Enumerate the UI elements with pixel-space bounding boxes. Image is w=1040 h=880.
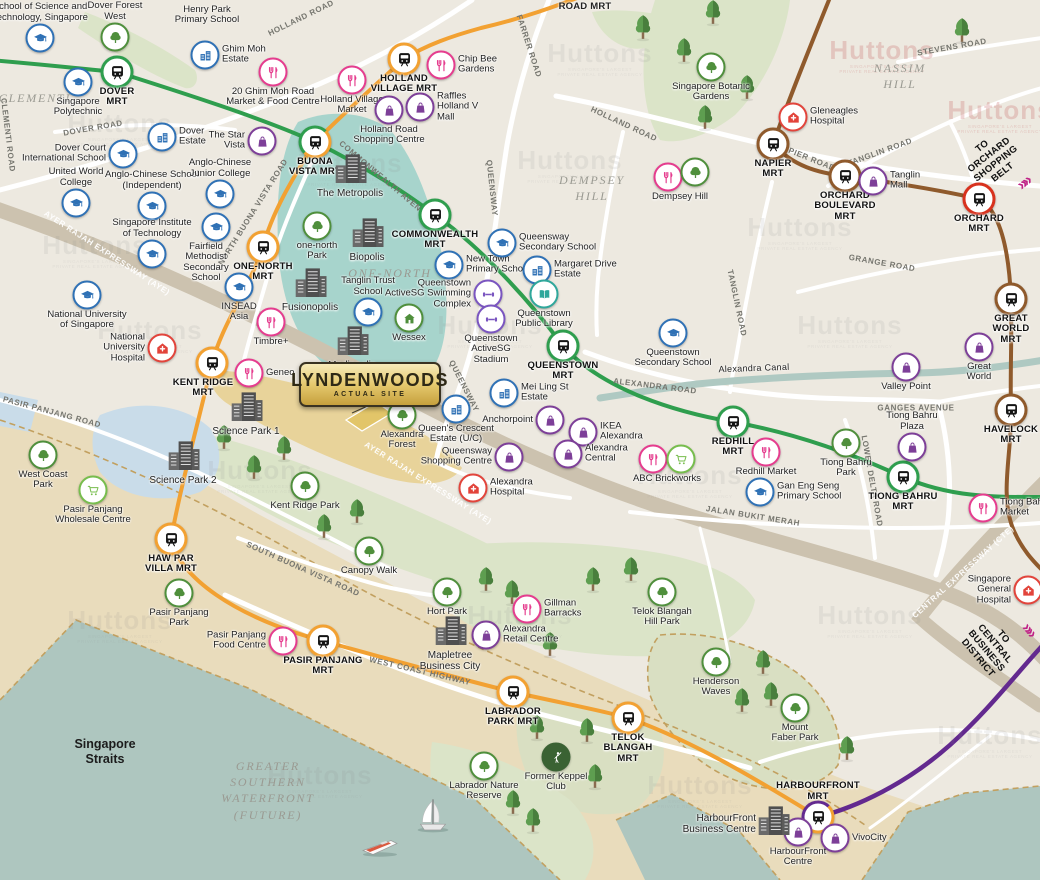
poi-label: Henderson Waves bbox=[693, 677, 739, 698]
tree-illustration bbox=[672, 36, 697, 65]
train-icon bbox=[887, 461, 920, 494]
road-label: JALAN BUKIT MERAH bbox=[705, 504, 800, 528]
train-icon bbox=[497, 676, 530, 709]
cap-icon bbox=[62, 189, 91, 218]
poi-label: Tiong Bahru Park bbox=[820, 458, 871, 479]
tree-icon bbox=[781, 694, 810, 723]
tree-illustration bbox=[312, 512, 337, 541]
train-icon bbox=[307, 625, 340, 658]
poi-label: Queensway Secondary School bbox=[519, 233, 596, 254]
food-icon bbox=[269, 627, 298, 656]
poi-label: United World College bbox=[49, 167, 104, 188]
poi-label: West Coast Park bbox=[19, 470, 68, 491]
poi-label: TELOK BLANGAH MRT bbox=[604, 733, 653, 764]
building-icon bbox=[291, 266, 329, 299]
poi-label: HARBOURFRONT MRT bbox=[776, 781, 860, 802]
poi-label: COMMONWEALTH MRT bbox=[392, 230, 479, 251]
cap-icon bbox=[73, 281, 102, 310]
dumb-icon bbox=[477, 305, 506, 334]
food-icon bbox=[235, 359, 264, 388]
tree-icon bbox=[355, 537, 384, 566]
train-icon bbox=[995, 283, 1028, 316]
tree-illustration bbox=[521, 806, 546, 835]
train-icon bbox=[196, 347, 229, 380]
poi-label: Fairfield Methodist Secondary School bbox=[183, 242, 228, 284]
hosp-icon bbox=[779, 103, 808, 132]
poi-label: Alexandra Hospital bbox=[490, 478, 533, 499]
food-icon bbox=[969, 494, 998, 523]
poi-label: Queenstown ActiveSG Stadium bbox=[464, 334, 517, 365]
cap-icon bbox=[435, 251, 464, 280]
cap-icon bbox=[202, 213, 231, 242]
tree-illustration bbox=[631, 13, 656, 42]
book-icon bbox=[530, 280, 559, 309]
poi-label: ORCHARD MRT bbox=[954, 214, 1004, 235]
road-label: FARRER ROAD bbox=[515, 14, 544, 79]
cap-icon bbox=[109, 140, 138, 169]
poi-label: TIONG BAHRU MRT bbox=[868, 492, 937, 513]
tree-icon bbox=[165, 579, 194, 608]
poi-label: PASIR PANJANG MRT bbox=[283, 656, 362, 677]
tree-icon bbox=[681, 158, 710, 187]
poi-layer: HuttonsSINGAPORE'S LARGESTPRIVATE REAL E… bbox=[0, 0, 1040, 880]
poi-label: Singapore Botanic Gardens bbox=[672, 82, 750, 103]
poi-label: KENT RIDGE MRT bbox=[173, 378, 234, 399]
poi-label: Tiong Bahru Market bbox=[1000, 498, 1040, 519]
tree-icon bbox=[303, 212, 332, 241]
cap-icon bbox=[354, 298, 383, 327]
poi-label: Ghim Moh Estate bbox=[222, 45, 266, 66]
building-icon bbox=[348, 216, 386, 249]
poi-label: Tanglin Mall bbox=[890, 171, 920, 192]
tree-icon bbox=[470, 752, 499, 781]
poi-label: DOVER MRT bbox=[100, 87, 135, 108]
poi-label: Timbre+ bbox=[254, 337, 289, 347]
bag-icon bbox=[821, 824, 850, 853]
road-label: CLEMENTI ROAD bbox=[0, 97, 17, 172]
poi-label: Pasir Panjang Food Centre bbox=[207, 631, 266, 652]
bag-icon bbox=[965, 333, 994, 362]
poi-label: Labrador Nature Reserve bbox=[449, 781, 518, 802]
estate-icon bbox=[191, 41, 220, 70]
poi-label: QUEENSTOWN MRT bbox=[528, 361, 599, 382]
hosp-icon bbox=[459, 474, 488, 503]
watermark: HuttonsSINGAPORE'S LARGESTPRIVATE REAL E… bbox=[947, 96, 1040, 134]
building-icon bbox=[754, 804, 792, 837]
road-label: GRANGE ROAD bbox=[848, 253, 916, 274]
tree-illustration bbox=[693, 103, 718, 132]
bag-icon bbox=[472, 621, 501, 650]
hosp-icon bbox=[148, 334, 177, 363]
tree-illustration bbox=[474, 565, 499, 594]
train-icon bbox=[612, 702, 645, 735]
map-label: Alexandra Canal bbox=[718, 363, 789, 375]
tree-illustration bbox=[272, 434, 297, 463]
home-icon bbox=[395, 304, 424, 333]
poi-label: National University of Singapore bbox=[47, 310, 126, 331]
tree-illustration bbox=[701, 0, 726, 27]
tree-icon bbox=[832, 429, 861, 458]
cap-icon bbox=[26, 24, 55, 53]
site-badge: LYNDENWOODS ACTUAL SITE bbox=[299, 362, 441, 407]
tree-icon bbox=[648, 578, 677, 607]
poi-label: Mount Faber Park bbox=[772, 723, 819, 744]
poi-label: Great World bbox=[967, 362, 992, 383]
bag-icon bbox=[859, 167, 888, 196]
food-icon bbox=[259, 58, 288, 87]
poi-label: Alexandra Central bbox=[585, 444, 628, 465]
watermark: HuttonsSINGAPORE'S LARGESTPRIVATE REAL E… bbox=[937, 721, 1040, 759]
poi-label: Valley Point bbox=[881, 382, 930, 392]
cap-icon bbox=[225, 273, 254, 302]
bag-icon bbox=[554, 440, 583, 469]
tree-icon bbox=[29, 441, 58, 470]
poi-label: ORCHARD BOULEVARD MRT bbox=[814, 191, 875, 222]
direction-arrow-icon: »» bbox=[1017, 620, 1038, 641]
estate-icon bbox=[148, 123, 177, 152]
building-icon bbox=[227, 390, 265, 423]
poi-label: Anglo-Chinese Junior College bbox=[189, 158, 251, 179]
building-icon bbox=[431, 614, 469, 647]
hosp-icon bbox=[1014, 576, 1040, 605]
direction-arrow-icon: »» bbox=[1014, 173, 1034, 194]
tree-illustration bbox=[835, 734, 860, 763]
road-label: TANGLIN ROAD bbox=[847, 136, 914, 168]
cap-icon bbox=[138, 240, 167, 269]
watermark: HuttonsSINGAPORE'S LARGESTPRIVATE REAL E… bbox=[797, 311, 902, 349]
poi-label: Holland Road Shopping Centre bbox=[353, 125, 424, 146]
poi-label: Singapore Polytechnic bbox=[54, 97, 103, 118]
poi-label: Pasir Panjang Park bbox=[149, 608, 208, 629]
train-icon bbox=[419, 199, 452, 232]
estate-icon bbox=[442, 395, 471, 424]
tree-icon bbox=[101, 23, 130, 52]
poi-label: New Town Primary School bbox=[466, 255, 530, 276]
train-icon bbox=[155, 523, 188, 556]
poi-label: Alexandra Forest bbox=[381, 430, 424, 451]
cap-icon bbox=[659, 319, 688, 348]
train-icon bbox=[963, 183, 996, 216]
poi-label: Gan Eng Seng Primary School bbox=[777, 482, 841, 503]
train-icon bbox=[247, 231, 280, 264]
train-icon bbox=[829, 160, 862, 193]
map-label: Singapore Straits bbox=[74, 737, 135, 767]
food-icon bbox=[338, 66, 367, 95]
poi-label: REDHILL MRT bbox=[712, 437, 755, 458]
poi-label: ABC Brickworks bbox=[633, 474, 701, 484]
road-label: HOLLAND ROAD bbox=[267, 0, 336, 38]
road-label: HOLLAND ROAD bbox=[589, 105, 658, 144]
bag-icon bbox=[406, 93, 435, 122]
tree-icon bbox=[702, 648, 731, 677]
cap-icon bbox=[488, 229, 517, 258]
poi-label: one-north Park bbox=[297, 241, 338, 262]
poi-label: Dover Estate bbox=[179, 127, 206, 148]
poi-label: Queen's Crescent Estate (U/C) bbox=[418, 424, 494, 445]
poi-label: Anchorpoint bbox=[482, 415, 533, 425]
tree-illustration bbox=[345, 497, 370, 526]
cart-icon bbox=[79, 476, 108, 505]
map-label: ROAD MRT bbox=[559, 2, 612, 12]
train-icon bbox=[717, 406, 750, 439]
food-icon bbox=[513, 595, 542, 624]
poi-label: Dover Forest West bbox=[88, 1, 143, 22]
location-map: HuttonsSINGAPORE'S LARGESTPRIVATE REAL E… bbox=[0, 0, 1040, 880]
road-label: PASIR PANJANG ROAD bbox=[2, 395, 102, 430]
site-badge-subtitle: ACTUAL SITE bbox=[334, 391, 407, 398]
poi-label: Queenstown ActiveSG Swimming Complex bbox=[385, 278, 471, 309]
area-label: GREATER SOUTHERN WATERFRONT (FUTURE) bbox=[221, 758, 314, 823]
poi-label: NAPIER MRT bbox=[754, 159, 791, 180]
poi-label: Margaret Drive Estate bbox=[554, 260, 617, 281]
bag-icon bbox=[375, 96, 404, 125]
building-icon bbox=[331, 152, 369, 185]
train-icon bbox=[995, 394, 1028, 427]
poi-label: Gleneagles Hospital bbox=[810, 107, 858, 128]
estate-icon bbox=[490, 379, 519, 408]
poi-label: Queensway Shopping Centre bbox=[421, 447, 492, 468]
poi-label: HarbourFront Centre bbox=[770, 847, 827, 868]
poi-label: HarbourFront Business Centre bbox=[683, 813, 756, 835]
cap-icon bbox=[746, 478, 775, 507]
bag-icon bbox=[898, 433, 927, 462]
poi-label: Mapletree Business City bbox=[420, 650, 481, 672]
poi-label: Queenstown Secondary School bbox=[634, 348, 711, 369]
train-icon bbox=[757, 128, 790, 161]
poi-label: Fusionopolis bbox=[282, 302, 338, 313]
poi-label: Singapore Institute of Technology bbox=[112, 218, 191, 239]
train-icon bbox=[101, 56, 134, 89]
poi-label: Former Keppel Club bbox=[525, 772, 588, 793]
food-icon bbox=[654, 163, 683, 192]
poi-label: The Metropolis bbox=[317, 188, 383, 199]
watermark: HuttonsSINGAPORE'S LARGESTPRIVATE REAL E… bbox=[647, 771, 752, 809]
tree-illustration bbox=[751, 648, 776, 677]
poi-label: Tiong Bahru Plaza bbox=[886, 411, 937, 432]
tree-icon bbox=[433, 578, 462, 607]
tree-illustration bbox=[619, 555, 644, 584]
poi-label: Kent Ridge Park bbox=[270, 501, 339, 511]
road-label: TANGLIN ROAD bbox=[726, 269, 749, 337]
bag-icon bbox=[248, 127, 277, 156]
poi-label: Alexandra Retail Centre bbox=[503, 625, 558, 646]
watermark: HuttonsSINGAPORE'S LARGESTPRIVATE REAL E… bbox=[547, 39, 652, 77]
road-label: LOWER DELTA ROAD bbox=[860, 435, 885, 528]
train-icon bbox=[547, 330, 580, 363]
poi-label: Science Park 1 bbox=[212, 426, 279, 437]
tree-icon bbox=[291, 472, 320, 501]
bag-icon bbox=[536, 406, 565, 435]
road-label: QUEENSWAY bbox=[485, 159, 500, 216]
poi-label: Wessex bbox=[392, 333, 426, 343]
poi-label: School of Science and Technology, Singap… bbox=[0, 2, 88, 23]
poi-label: Anglo-Chinese School (Independent) bbox=[105, 170, 199, 191]
poi-label: Telok Blangah Hill Park bbox=[632, 607, 692, 628]
tree-illustration bbox=[575, 716, 600, 745]
poi-label: The Star Vista bbox=[209, 131, 245, 152]
cart-icon bbox=[667, 445, 696, 474]
poi-label: Canopy Walk bbox=[341, 566, 397, 576]
food-icon bbox=[639, 445, 668, 474]
poi-label: Gillman Barracks bbox=[544, 599, 581, 620]
golf-icon bbox=[542, 743, 571, 772]
poi-label: Mei Ling St Estate bbox=[521, 383, 569, 404]
poi-label: GREAT WORLD MRT bbox=[993, 314, 1030, 345]
tree-illustration bbox=[242, 453, 267, 482]
poi-label: LABRADOR PARK MRT bbox=[485, 707, 541, 728]
food-icon bbox=[752, 438, 781, 467]
site-badge-title: LYNDENWOODS bbox=[291, 371, 449, 389]
cap-icon bbox=[206, 180, 235, 209]
poi-label: VivoCity bbox=[852, 833, 887, 843]
map-label: Henry Park Primary School bbox=[175, 5, 239, 26]
poi-label: Chip Bee Gardens bbox=[458, 55, 497, 76]
poi-label: INSEAD Asia bbox=[221, 302, 256, 323]
food-icon bbox=[427, 51, 456, 80]
poi-label: HOLLAND VILLAGE MRT bbox=[371, 74, 438, 95]
building-icon bbox=[164, 439, 202, 472]
tree-icon bbox=[697, 53, 726, 82]
tree-illustration bbox=[581, 565, 606, 594]
poi-label: Science Park 2 bbox=[149, 475, 216, 486]
bag-icon bbox=[892, 353, 921, 382]
poi-label: 20 Ghim Moh Road Market & Food Centre bbox=[226, 87, 319, 108]
poi-label: Singapore General Hospital bbox=[968, 574, 1011, 605]
poi-label: Dover Court International School bbox=[22, 144, 106, 165]
poi-label: Queenstown Public Library bbox=[515, 309, 573, 330]
area-label: NASSIM HILL bbox=[874, 60, 926, 92]
road-label: ALEXANDRA ROAD bbox=[613, 376, 698, 395]
road-label: DOVER ROAD bbox=[63, 118, 124, 137]
poi-label: Raffles Holland V Mall bbox=[437, 91, 478, 122]
poi-label: Dempsey Hill bbox=[652, 192, 708, 202]
train-icon bbox=[299, 126, 332, 159]
bag-icon bbox=[495, 443, 524, 472]
area-label: DEMPSEY HILL bbox=[559, 172, 625, 204]
train-icon bbox=[388, 43, 421, 76]
direction-label: TO CENTRAL BUSINESS DISTRICT bbox=[957, 614, 1023, 681]
poi-label: National University Hospital bbox=[103, 332, 145, 363]
poi-label: IKEA Alexandra bbox=[600, 422, 643, 443]
poi-label: Pasir Panjang Wholesale Centre bbox=[55, 505, 131, 526]
poi-label: HAW PAR VILLA MRT bbox=[145, 554, 197, 575]
watermark: HuttonsSINGAPORE'S LARGESTPRIVATE REAL E… bbox=[817, 601, 922, 639]
poi-label: Biopolis bbox=[349, 252, 384, 263]
cap-icon bbox=[64, 68, 93, 97]
building-icon bbox=[333, 324, 371, 357]
poi-label: Redhill Market bbox=[736, 467, 797, 477]
poi-label: HAVELOCK MRT bbox=[984, 425, 1038, 446]
